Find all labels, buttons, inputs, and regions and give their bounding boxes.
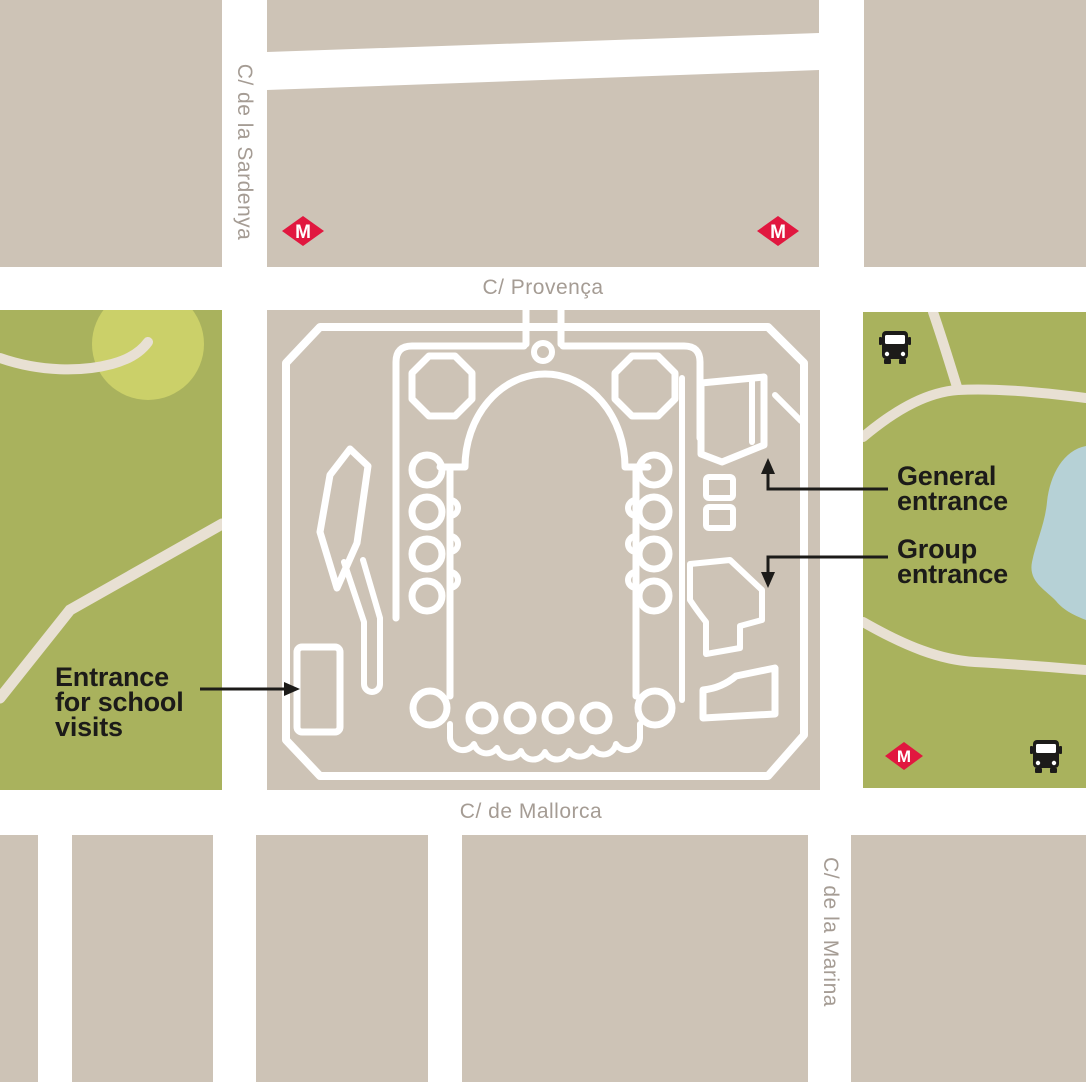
street-map: M M M (0, 0, 1086, 1087)
street-label-provenca: C/ Provença (482, 276, 603, 300)
street-label-mallorca: C/ de Mallorca (460, 800, 602, 824)
sagrada-familia-block (267, 310, 820, 790)
block-top-left (0, 0, 222, 267)
block-bottom-4 (462, 835, 808, 1082)
label-line: entrance (897, 562, 1008, 587)
metro-m-letter: M (770, 222, 786, 243)
label-school-entrance: Entrance for school visits (55, 665, 184, 740)
label-general-entrance: General entrance (897, 464, 1008, 514)
metro-m-letter: M (295, 222, 311, 243)
label-line: entrance (897, 489, 1008, 514)
block-top-middle (267, 70, 819, 267)
block-bottom-3 (256, 835, 428, 1082)
block-bottom-2 (72, 835, 213, 1082)
street-label-sardenya: C/ de la Sardenya (232, 64, 256, 241)
block-top-right (864, 0, 1086, 267)
block-top-middle-sliver (267, 0, 819, 52)
label-line: visits (55, 715, 184, 740)
block-bottom-5 (851, 835, 1086, 1082)
block-bottom-1 (0, 835, 38, 1082)
street-label-marina: C/ de la Marina (818, 857, 842, 1007)
metro-m-letter: M (897, 747, 911, 766)
label-group-entrance: Group entrance (897, 537, 1008, 587)
